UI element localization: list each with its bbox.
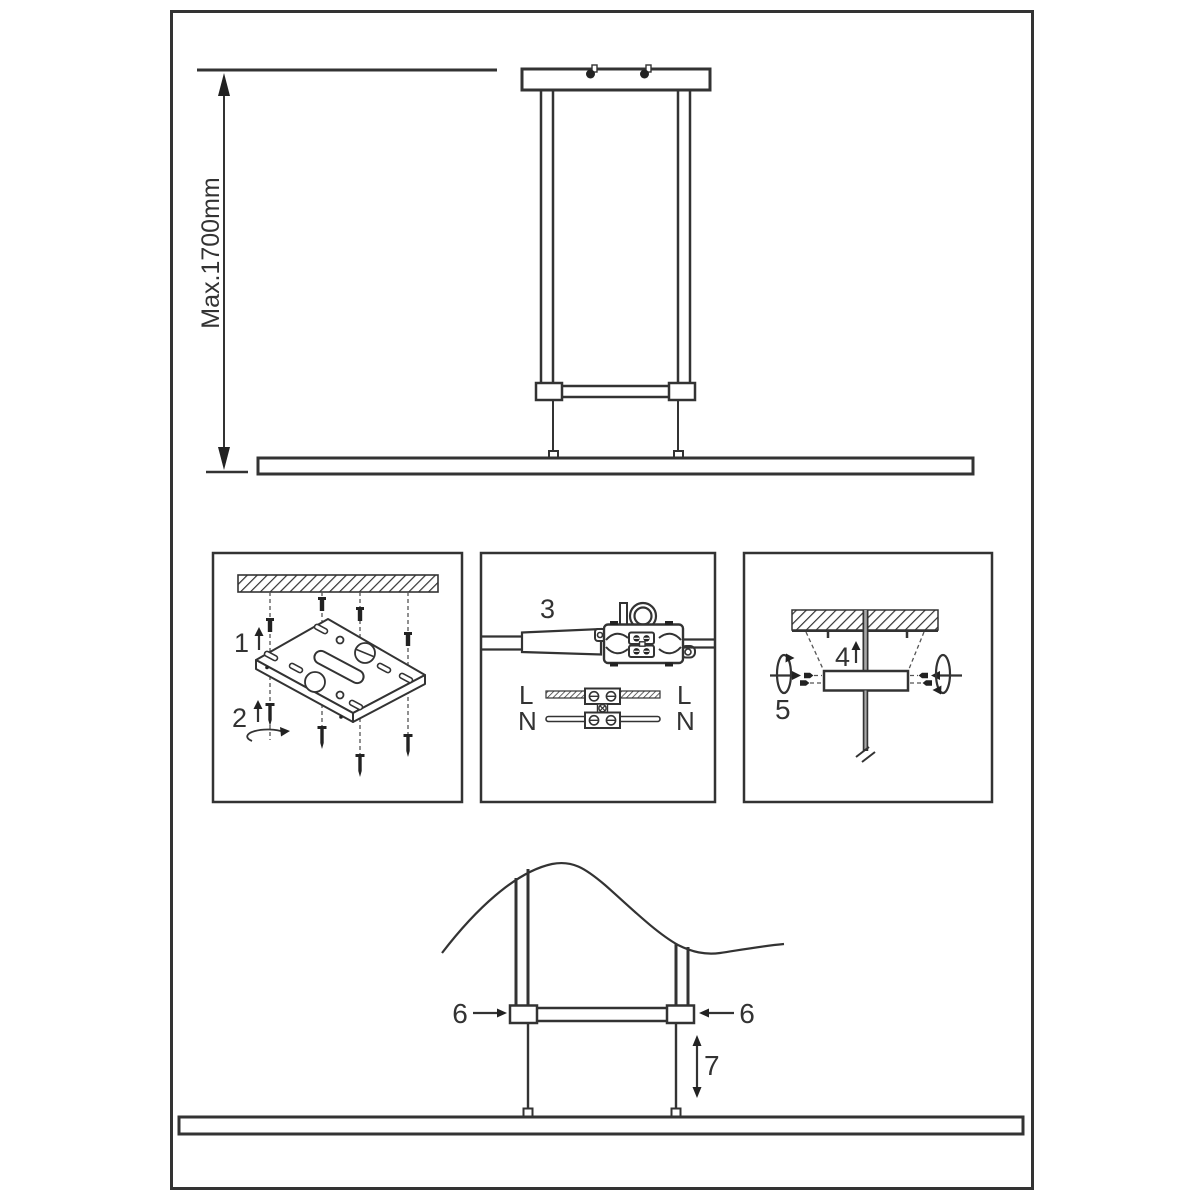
frame-bar [510,1006,694,1024]
cable-curve [442,863,784,954]
light-bar [179,1117,1023,1134]
canopy [824,671,908,691]
panel-wiring: 3 [481,553,715,802]
wire-neutral-right-label: N [676,706,695,736]
dimension-label: Max.1700mm [197,177,225,328]
step-7-label: 7 [704,1050,720,1081]
suspension-rods [541,90,690,386]
light-bar [258,458,973,474]
arrow-right-icon [473,1009,507,1018]
step-1-label: 1 [234,628,249,658]
installation-diagram: Max.1700mm [0,0,1200,1200]
instruction-sheet: Max.1700mm [0,0,1200,1200]
step-6-left-label: 6 [452,998,468,1029]
canopy [522,69,710,90]
drop-wires [549,400,683,459]
arrow-left-icon [699,1009,734,1018]
step-3-label: 3 [540,594,555,624]
step-2-label: 2 [232,703,247,733]
figure-adjustment: 6 6 7 [179,863,1023,1134]
height-adjust-arrow [693,1035,702,1098]
panel-mounting-plate: 1 2 [213,553,462,802]
wire-neutral-left-label: N [518,706,537,736]
suspension-rods [516,869,688,1006]
figure-overview: Max.1700mm [197,65,973,474]
frame-bar [536,383,695,400]
drop-wires [524,1023,681,1117]
ceiling-hatch [238,575,438,592]
step-5-label: 5 [775,694,791,725]
step-4-label: 4 [835,642,850,672]
step-6-right-label: 6 [739,998,755,1029]
panel-border [481,553,715,802]
panel-canopy-fixing: 4 [744,553,992,802]
